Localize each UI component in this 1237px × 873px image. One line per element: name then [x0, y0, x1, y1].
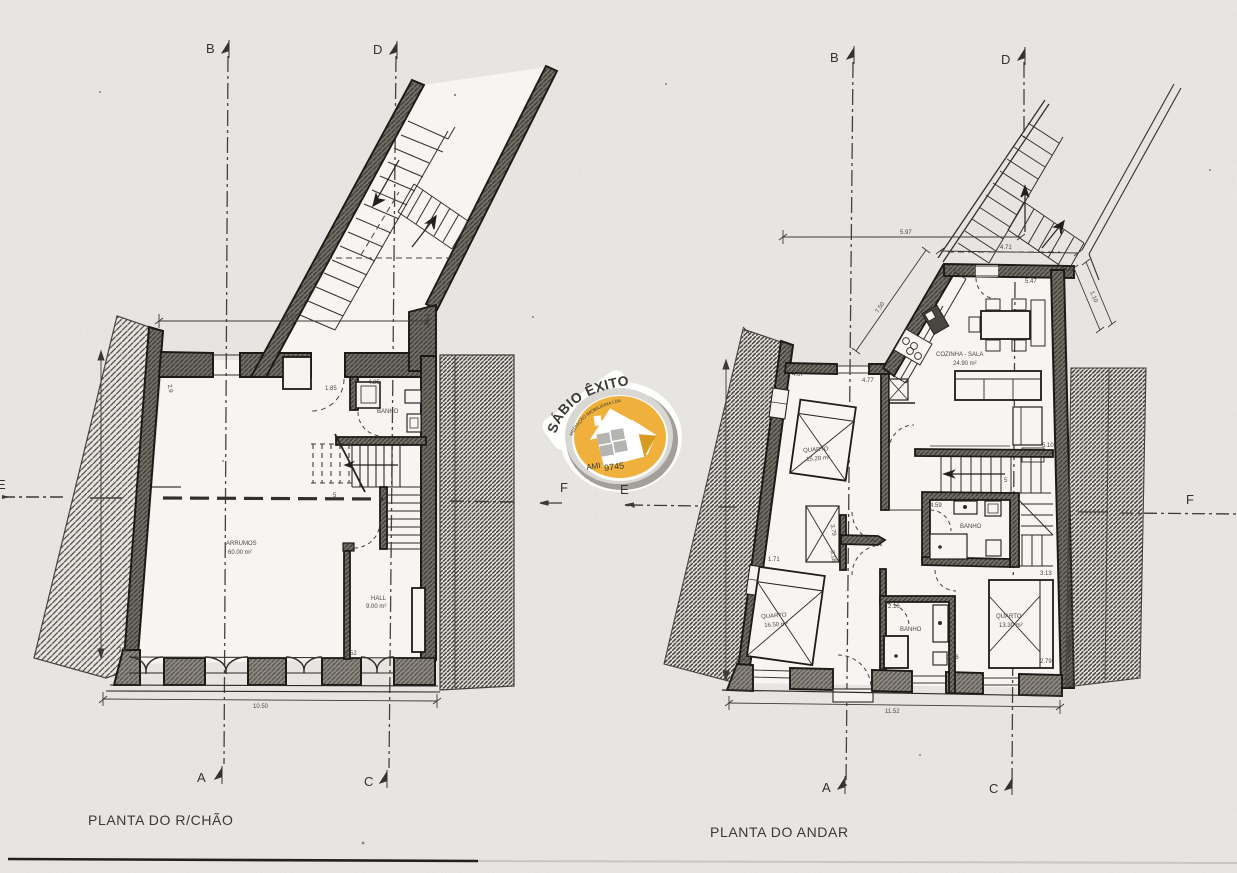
svg-text:C: C: [364, 774, 373, 789]
svg-text:60.00 m²: 60.00 m²: [228, 550, 252, 556]
svg-text:3.17: 3.17: [953, 269, 965, 275]
svg-text:E: E: [620, 482, 629, 497]
svg-text:A: A: [822, 780, 831, 795]
svg-text:4.77: 4.77: [862, 378, 874, 384]
svg-text:9.76: 9.76: [285, 315, 297, 321]
svg-text:11.52: 11.52: [885, 709, 900, 715]
svg-text:QUARTO: QUARTO: [996, 614, 1022, 620]
svg-text:2.79: 2.79: [1040, 659, 1052, 665]
svg-text:BANHO: BANHO: [900, 627, 922, 633]
svg-text:B: B: [830, 50, 839, 65]
svg-text:9.00 m²: 9.00 m²: [366, 604, 386, 610]
svg-text:10.50: 10.50: [253, 704, 269, 710]
svg-text:PLANTA DO R/CHÃO: PLANTA DO R/CHÃO: [88, 812, 233, 828]
svg-text:2.16: 2.16: [888, 604, 900, 610]
svg-text:BANHO: BANHO: [960, 524, 982, 530]
svg-text:7.61: 7.61: [118, 648, 130, 654]
svg-text:4.67: 4.67: [792, 372, 804, 378]
svg-text:B: B: [206, 41, 215, 56]
svg-text:24.90 m²: 24.90 m²: [953, 361, 977, 367]
svg-text:COZINHA - SALA: COZINHA - SALA: [936, 352, 983, 358]
svg-text:D: D: [1001, 52, 1010, 67]
svg-text:D: D: [373, 42, 382, 57]
svg-text:3.13: 3.13: [1040, 571, 1052, 577]
svg-text:2.52: 2.52: [345, 651, 357, 657]
svg-text:BANHO: BANHO: [377, 409, 399, 415]
svg-text:4.59: 4.59: [930, 503, 942, 509]
svg-text:4.71: 4.71: [1000, 245, 1012, 251]
svg-text:5.10: 5.10: [1042, 443, 1054, 449]
svg-text:5.97: 5.97: [900, 230, 912, 236]
svg-text:1.85: 1.85: [325, 386, 337, 392]
svg-text:HALL: HALL: [371, 596, 387, 602]
svg-text:2.76: 2.76: [947, 655, 959, 661]
svg-text:F: F: [560, 480, 568, 495]
svg-text:C: C: [989, 781, 998, 796]
svg-text:4.27: 4.27: [735, 657, 747, 663]
svg-text:13.30 m²: 13.30 m²: [999, 623, 1023, 629]
svg-text:ARRUMOS: ARRUMOS: [226, 541, 257, 547]
svg-text:PLANTA DO ANDAR: PLANTA DO ANDAR: [710, 824, 849, 840]
svg-text:5.47: 5.47: [1025, 279, 1037, 285]
svg-text:A: A: [197, 770, 206, 785]
svg-text:F: F: [1186, 492, 1194, 507]
svg-text:4.25: 4.25: [368, 380, 380, 386]
svg-text:E: E: [0, 477, 6, 492]
svg-text:1.71: 1.71: [768, 557, 780, 563]
